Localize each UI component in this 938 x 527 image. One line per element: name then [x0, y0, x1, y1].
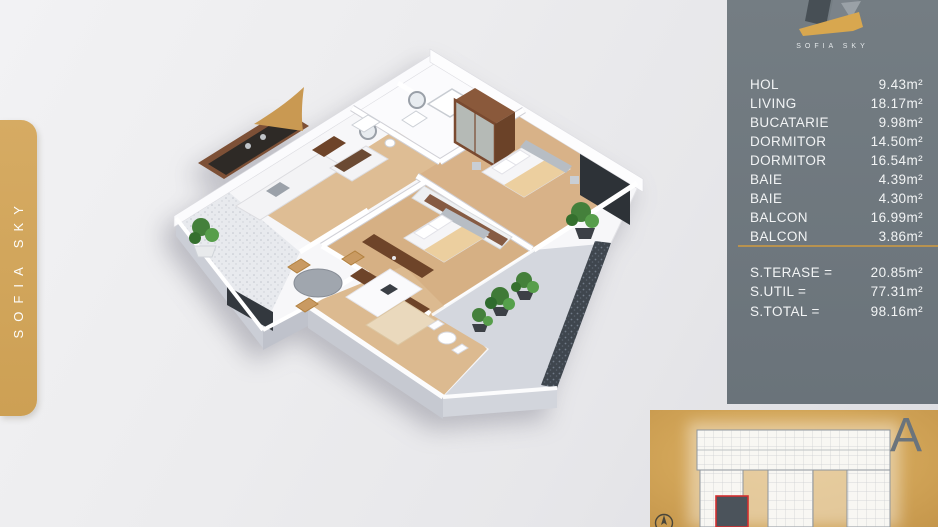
room-area: 16.99m²	[871, 210, 923, 225]
room-label: HOL	[750, 77, 779, 92]
room-area: 4.30m²	[879, 191, 923, 206]
room-row: DORMITOR16.54m²	[750, 151, 923, 170]
room-row: BALCON3.86m²	[750, 227, 923, 246]
compass-icon	[656, 515, 673, 527]
section-letter: A	[890, 412, 922, 460]
logo-icon	[791, 0, 875, 40]
room-row: HOL9.43m²	[750, 75, 923, 94]
site-plan-panel: A	[650, 410, 938, 527]
room-label: BUCATARIE	[750, 115, 829, 130]
room-label: BAIE	[750, 191, 782, 206]
room-area: 9.98m²	[879, 115, 923, 130]
room-row: LIVING18.17m²	[750, 94, 923, 113]
sidebar-brand-text: SOFIA SKY	[11, 198, 26, 338]
brand-sidebar: SOFIA SKY	[0, 120, 37, 416]
highlighted-unit[interactable]	[716, 496, 748, 527]
total-label: S.TOTAL =	[750, 304, 820, 319]
room-area: 3.86m²	[879, 229, 923, 244]
total-value: 20.85m²	[871, 265, 923, 280]
entrance-arrow-icon	[254, 87, 304, 131]
room-row: BAIE4.30m²	[750, 189, 923, 208]
room-area: 16.54m²	[871, 153, 923, 168]
room-label: BALCON	[750, 210, 808, 225]
room-area: 4.39m²	[879, 172, 923, 187]
total-row: S.TERASE =20.85m²	[750, 263, 923, 282]
room-label: DORMITOR	[750, 153, 826, 168]
total-value: 77.31m²	[871, 284, 923, 299]
room-label: DORMITOR	[750, 134, 826, 149]
brand-logo: SOFIA SKY	[727, 0, 938, 50]
summary-panel: SOFIA SKY HOL9.43m²LIVING18.17m²BUCATARI…	[727, 0, 938, 404]
room-area: 9.43m²	[879, 77, 923, 92]
room-row: BUCATARIE9.98m²	[750, 113, 923, 132]
total-row: S.TOTAL =98.16m²	[750, 302, 923, 321]
total-value: 98.16m²	[871, 304, 923, 319]
room-row: BAIE4.39m²	[750, 170, 923, 189]
total-label: S.UTIL =	[750, 284, 806, 299]
room-label: BAIE	[750, 172, 782, 187]
room-row: BALCON16.99m²	[750, 208, 923, 227]
logo-text: SOFIA SKY	[727, 43, 938, 50]
total-label: S.TERASE =	[750, 265, 832, 280]
room-row: DORMITOR14.50m²	[750, 132, 923, 151]
room-area: 14.50m²	[871, 134, 923, 149]
room-area: 18.17m²	[871, 96, 923, 111]
room-label: LIVING	[750, 96, 797, 111]
room-label: BALCON	[750, 229, 808, 244]
totals-list: S.TERASE =20.85m²S.UTIL =77.31m²S.TOTAL …	[750, 263, 923, 321]
rooms-list: HOL9.43m²LIVING18.17m²BUCATARIE9.98m²DOR…	[750, 75, 923, 246]
presentation-page: SOFIA SKY SOFIA SKY HOL9.43m²LIVING18.17…	[0, 0, 938, 527]
panel-divider	[738, 245, 938, 247]
total-row: S.UTIL =77.31m²	[750, 282, 923, 301]
